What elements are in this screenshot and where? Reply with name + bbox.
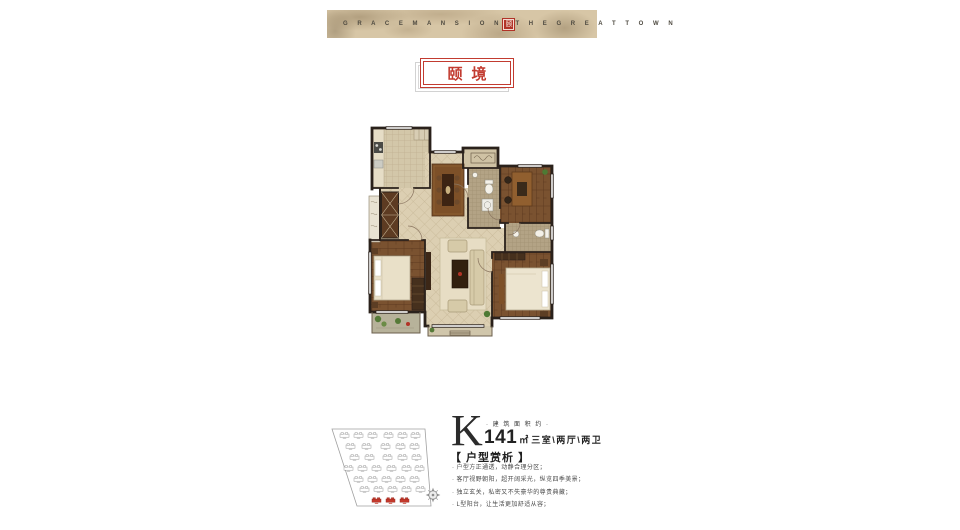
sofa-main [470, 250, 484, 305]
section-title-plaque: 颐境 [420, 58, 514, 88]
nightstand-1b [372, 302, 378, 308]
floor-plan-image [368, 122, 558, 337]
nightstand-2a [540, 259, 548, 266]
unit-type-letter: K [451, 412, 483, 450]
banner-left-text: G R A C E M A N S I O N [343, 21, 502, 27]
wardrobe-2 [495, 253, 525, 260]
armchair-bottom [448, 300, 467, 312]
seal-character: 颐 [505, 21, 512, 28]
red-seal-icon: 颐 [502, 18, 515, 31]
kitchen-sink [374, 160, 383, 168]
washer [482, 199, 493, 211]
balcony-flower [406, 322, 410, 326]
compass-icon [424, 486, 442, 504]
analysis-point: · 户型方正通透，动静合理分区； [452, 464, 584, 476]
bed-runner-2 [499, 274, 504, 304]
kitchen-counter [373, 129, 384, 187]
area-unit: ㎡ [519, 435, 528, 446]
plant-study [542, 169, 548, 175]
balcony-plant-2 [395, 318, 401, 324]
kitchen-cabinets [414, 129, 430, 140]
banner-right-text: T H E G R E A T T O W N [515, 21, 676, 27]
desk-chair-1 [505, 177, 512, 184]
stove [374, 142, 383, 153]
analysis-point: · 客厅视野朝阳，超开阔采光，纵览四季美景； [452, 476, 584, 488]
analysis-point: · L型阳台，让生活更加舒适从容； [452, 501, 584, 513]
header-banner: G R A C E M A N S I O N 颐 T H E G R E A … [327, 10, 597, 38]
desk-chair-2 [505, 197, 512, 204]
sink-1 [473, 173, 478, 178]
analysis-point: · 独立玄关，私密又不失豪华的尊贵典藏； [452, 489, 584, 501]
nightstand-1a [372, 248, 378, 254]
page-title: 颐境 [438, 63, 495, 84]
toilet-2 [535, 230, 544, 237]
balcony-plant-1 [375, 316, 381, 322]
tv-cabinet [426, 252, 431, 290]
title-plaque-frame: 颐境 [420, 58, 514, 88]
shaft-floor [463, 148, 498, 168]
corridor-floor-2 [492, 228, 505, 252]
area-value: 141 [484, 429, 517, 446]
area-row: 141 ㎡ 三室\两厅\两卫 [484, 429, 602, 446]
ac-platform [369, 196, 380, 242]
armchair-top [448, 240, 467, 252]
analysis-heading: 【 户型赏析 】 [450, 449, 530, 465]
room-configuration: 三室\两厅\两卫 [531, 435, 602, 446]
brochure-page: G R A C E M A N S I O N 颐 T H E G R E A … [0, 0, 960, 530]
toilet-1 [485, 184, 493, 194]
nightstand-2b [540, 311, 548, 317]
analysis-list: · 户型方正通透，动静合理分区； · 客厅视野朝阳，超开阔采光，纵览四季美景； … [452, 464, 584, 513]
plant-living [484, 311, 490, 317]
